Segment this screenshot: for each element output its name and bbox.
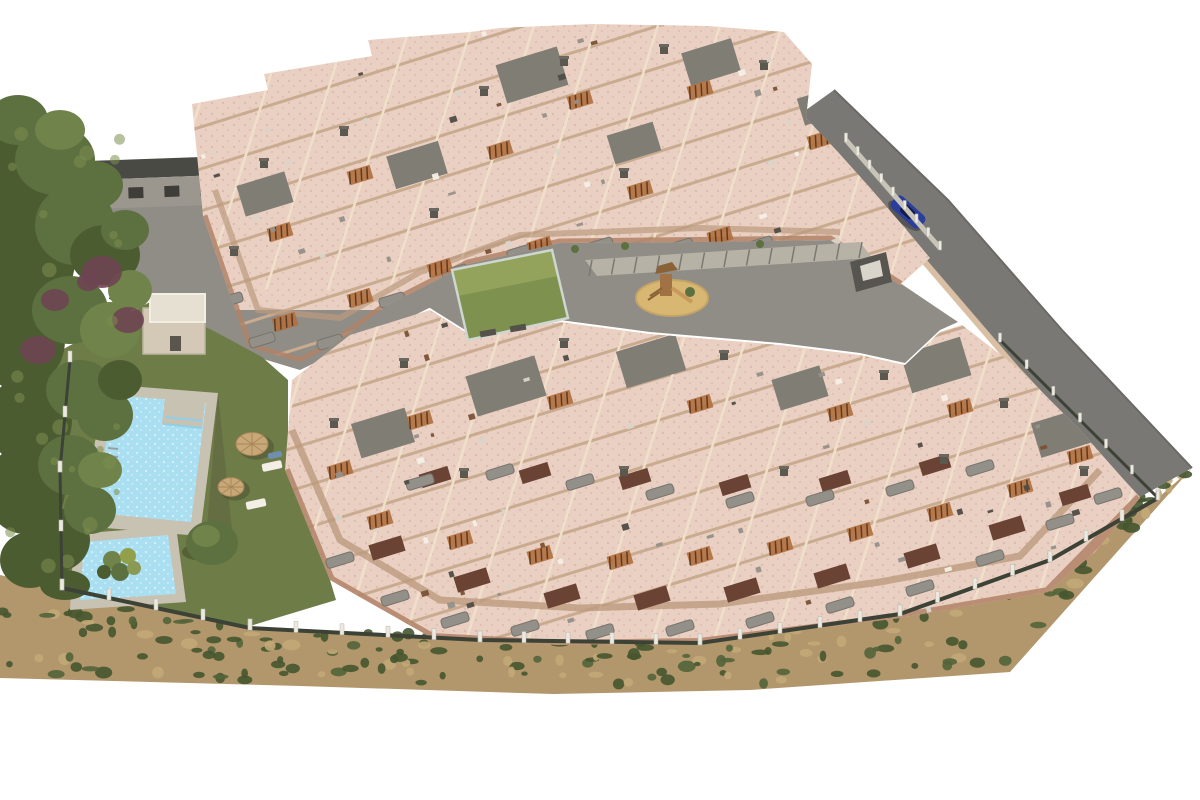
service-hut: [143, 294, 205, 354]
aerial-render: [0, 0, 1200, 800]
hut-door: [170, 336, 181, 351]
planter: [756, 240, 764, 248]
playground-plant: [685, 287, 695, 297]
round-tree-highlight: [192, 525, 220, 547]
planter: [571, 245, 579, 253]
play-tower: [660, 274, 672, 296]
hut-roof: [150, 294, 205, 322]
planter: [621, 242, 629, 250]
pool-step-platform: [162, 398, 205, 428]
render-canvas: [0, 0, 1200, 800]
